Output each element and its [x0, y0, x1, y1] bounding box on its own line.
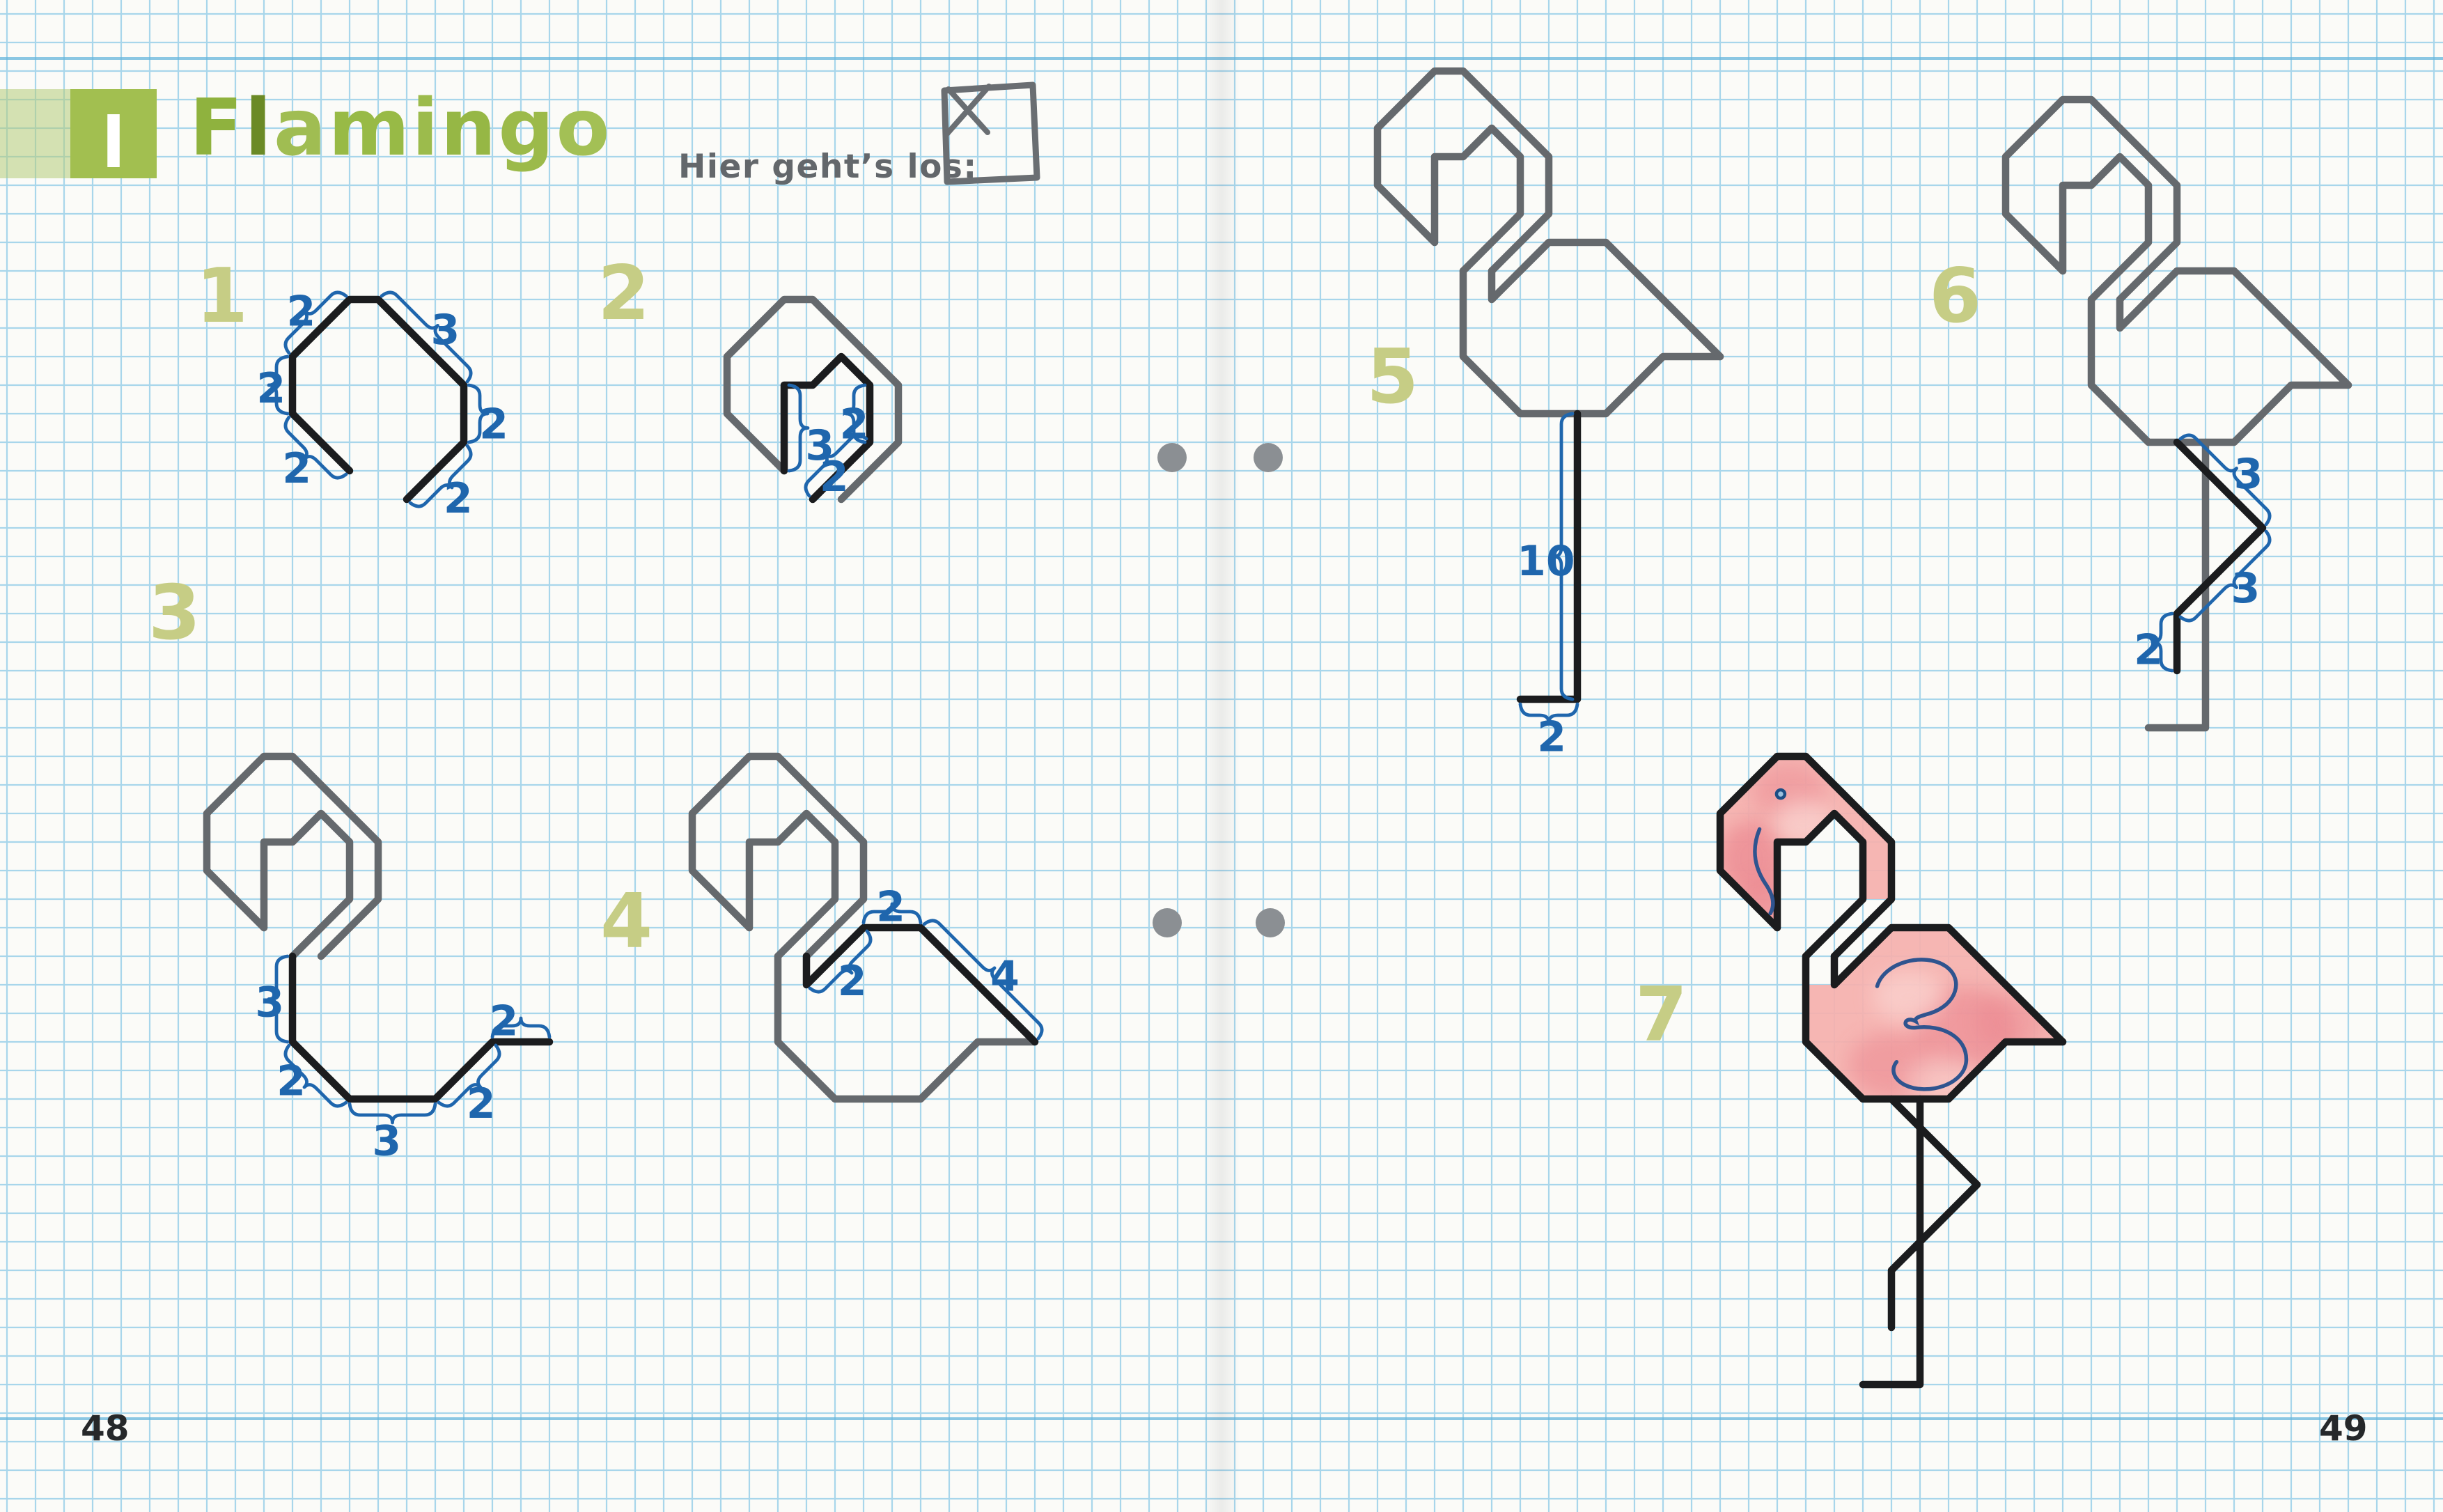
- flamingo-eye: [1777, 790, 1785, 798]
- measurement-label: 2: [444, 474, 473, 523]
- watercolor-blotch: [1873, 971, 1944, 1022]
- measurement-label: 3: [372, 1116, 401, 1165]
- step-number-4: 4: [600, 878, 653, 965]
- page-title: Flamingo: [189, 83, 611, 173]
- page-number-left: 48: [81, 1408, 130, 1449]
- measurement-label: 2: [256, 364, 286, 413]
- measurement-label: 3: [2234, 450, 2263, 499]
- worksheet-canvas: l Flamingo Hier geht’s los: 232222132223…: [0, 0, 2443, 1512]
- measurement-label: 3: [255, 979, 284, 1027]
- measurement-label: 10: [1517, 537, 1575, 586]
- measurement-label: 3: [430, 306, 460, 354]
- sequence-dot: [1157, 443, 1187, 472]
- measurement-label: 2: [876, 882, 905, 931]
- measurement-label: 2: [282, 444, 311, 493]
- measurement-label: 4: [990, 953, 1020, 1001]
- measurement-label: 2: [1537, 712, 1566, 761]
- page-gutter-shadow: [1203, 0, 1240, 1512]
- chapter-tile-light: [0, 89, 70, 178]
- book-spread: l Flamingo Hier geht’s los: 232222132223…: [0, 0, 2443, 1512]
- step-number-3: 3: [148, 570, 201, 657]
- measurement-label: 2: [840, 400, 869, 449]
- page-header: l Flamingo: [0, 83, 611, 184]
- measurement-label: 2: [286, 287, 315, 336]
- step-number-5: 5: [1366, 334, 1419, 421]
- sequence-dot: [1254, 443, 1283, 472]
- measurement-label: 2: [479, 400, 508, 449]
- step-number-6: 6: [1929, 253, 1981, 340]
- step-number-7: 7: [1635, 972, 1687, 1059]
- gutter-shade: [1203, 0, 1240, 1512]
- measurement-label: 2: [838, 957, 867, 1006]
- measurement-label: 2: [276, 1057, 306, 1105]
- step-number-1: 1: [196, 253, 248, 340]
- page-number-right: 49: [2319, 1408, 2368, 1449]
- measurement-label: 2: [490, 997, 519, 1045]
- chapter-tile-letter: l: [102, 102, 125, 184]
- step-number-2: 2: [598, 250, 650, 337]
- measurement-label: 3: [2231, 564, 2261, 613]
- start-here-label: Hier geht’s los:: [678, 148, 978, 186]
- sequence-dot: [1153, 908, 1182, 937]
- measurement-label: 2: [820, 453, 849, 501]
- sequence-dot: [1256, 908, 1285, 937]
- measurement-label: 2: [2134, 625, 2163, 674]
- measurement-label: 2: [467, 1080, 496, 1128]
